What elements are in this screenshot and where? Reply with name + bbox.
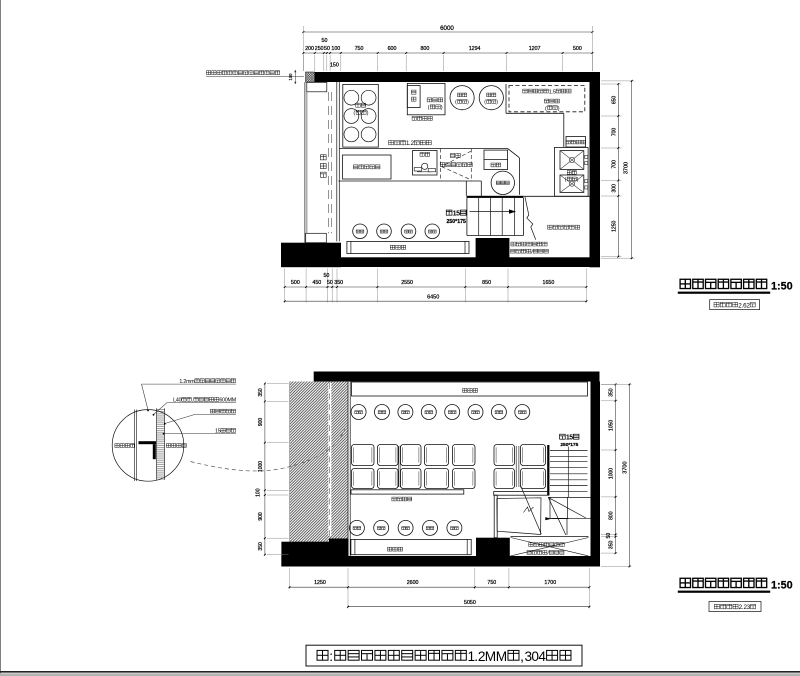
svg-text:50: 50 xyxy=(323,273,329,279)
svg-text:1207: 1207 xyxy=(529,46,541,52)
svg-text:750: 750 xyxy=(355,46,364,52)
svg-text:1000: 1000 xyxy=(258,461,264,472)
svg-text:350: 350 xyxy=(334,280,343,286)
svg-text:6000: 6000 xyxy=(440,25,454,32)
svg-text:(: ( xyxy=(455,100,457,106)
svg-text:): ) xyxy=(441,105,443,111)
svg-text:2.62: 2.62 xyxy=(738,302,750,309)
svg-text:300: 300 xyxy=(611,184,617,193)
svg-text:(: ( xyxy=(565,177,567,183)
svg-text:(: ( xyxy=(353,111,355,117)
svg-text:850: 850 xyxy=(482,280,491,286)
svg-text:350: 350 xyxy=(609,388,615,397)
svg-text:(: ( xyxy=(484,100,486,106)
svg-text:): ) xyxy=(577,177,579,183)
svg-text:1250: 1250 xyxy=(611,221,617,232)
svg-text:500: 500 xyxy=(291,280,300,286)
svg-text:350: 350 xyxy=(258,388,264,397)
svg-text:800: 800 xyxy=(609,511,615,520)
svg-text:(: ( xyxy=(428,105,430,111)
svg-text:200: 200 xyxy=(305,46,314,52)
svg-text::: : xyxy=(329,649,333,664)
svg-text:1:50: 1:50 xyxy=(771,579,793,591)
svg-text:6450: 6450 xyxy=(427,294,439,300)
svg-text:1000: 1000 xyxy=(609,468,615,479)
svg-text:100: 100 xyxy=(331,46,340,52)
svg-text:350: 350 xyxy=(609,541,615,550)
svg-text:50: 50 xyxy=(324,46,330,52)
svg-text:50: 50 xyxy=(606,533,612,539)
svg-text:500: 500 xyxy=(573,46,582,52)
svg-text:1250: 1250 xyxy=(314,580,326,586)
svg-text:100: 100 xyxy=(256,488,262,497)
svg-text:250*175: 250*175 xyxy=(560,442,578,448)
svg-text:900: 900 xyxy=(258,418,264,427)
svg-text:800: 800 xyxy=(420,46,429,52)
svg-text:): ) xyxy=(367,111,369,117)
svg-text:700: 700 xyxy=(611,160,617,169)
svg-text:100: 100 xyxy=(288,73,293,81)
svg-text:450: 450 xyxy=(312,280,321,286)
svg-text:1650: 1650 xyxy=(543,280,555,286)
svg-text:2550: 2550 xyxy=(401,280,413,286)
svg-text:50: 50 xyxy=(327,280,333,286)
svg-text:15: 15 xyxy=(453,210,461,218)
svg-text:5050: 5050 xyxy=(464,600,476,606)
svg-text:): ) xyxy=(467,100,469,106)
svg-text:3700: 3700 xyxy=(623,461,629,473)
svg-text:15: 15 xyxy=(566,435,573,442)
svg-text:750: 750 xyxy=(487,580,496,586)
svg-text:150: 150 xyxy=(330,63,339,69)
svg-text:): ) xyxy=(496,100,498,106)
svg-text:700: 700 xyxy=(611,128,617,137)
svg-text:2.23: 2.23 xyxy=(739,604,751,611)
svg-text:50: 50 xyxy=(322,38,328,44)
svg-text:600: 600 xyxy=(388,46,397,52)
svg-text:650: 650 xyxy=(611,96,617,105)
svg-text:900: 900 xyxy=(258,512,264,521)
svg-text:2600: 2600 xyxy=(407,580,419,586)
svg-text:1294: 1294 xyxy=(469,46,481,52)
svg-text:3700: 3700 xyxy=(624,162,630,174)
svg-text:1700: 1700 xyxy=(544,580,556,586)
svg-text:1.2: 1.2 xyxy=(406,140,415,147)
svg-text:250*175: 250*175 xyxy=(447,219,466,225)
svg-text:1:50: 1:50 xyxy=(771,280,793,292)
svg-text:): ) xyxy=(558,106,560,112)
svg-text:(: ( xyxy=(545,106,547,112)
svg-text:1050: 1050 xyxy=(609,420,615,431)
svg-text:1.5: 1.5 xyxy=(549,89,556,95)
svg-text:250: 250 xyxy=(315,46,324,52)
svg-text:,304: ,304 xyxy=(520,649,546,664)
svg-text:350: 350 xyxy=(258,542,264,551)
svg-text:1.2MM: 1.2MM xyxy=(468,649,508,664)
